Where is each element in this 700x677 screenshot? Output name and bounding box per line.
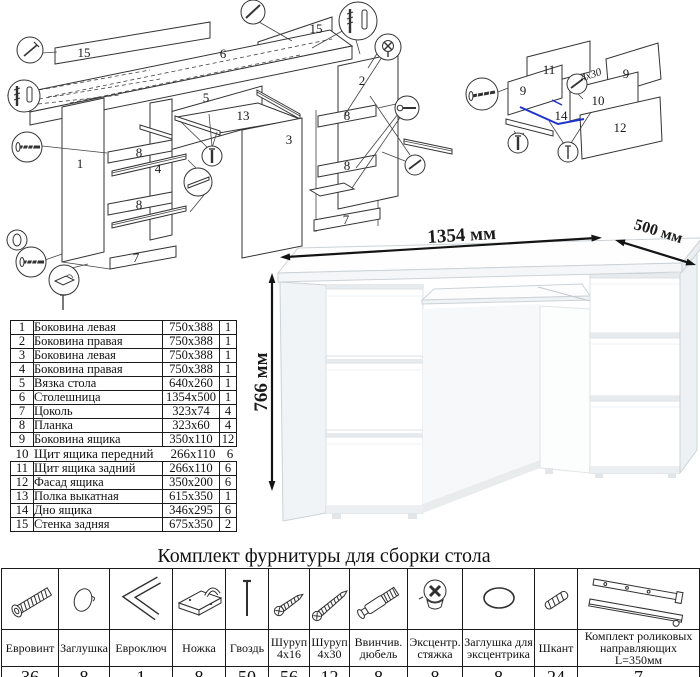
screw-4x16-icon (269, 571, 309, 627)
wood-dowel-icon (535, 571, 577, 627)
nail-icon (226, 571, 268, 627)
table-row: 11Щит ящика задний266x1106 (11, 462, 237, 476)
callout-dowel-and-shkant (339, 2, 377, 40)
part-label-4: 4 (155, 161, 162, 176)
hardware-label: Шуруп 4х30 (310, 630, 350, 667)
callout-confirmat (508, 133, 528, 153)
callout-cam-lock (375, 34, 401, 60)
table-row: 14Дно ящика346x2956 (11, 504, 237, 518)
hardware-qty: 36 (2, 667, 59, 677)
hardware-qty: 1 (110, 667, 173, 677)
table-row: 7Цоколь323x744 (11, 405, 237, 419)
hardware-table: Евровинт Заглушка Евроключ Ножка Гвоздь … (1, 568, 700, 677)
part-plinth (110, 246, 176, 269)
part-label-8: 8 (344, 108, 351, 123)
parts-table-2: 11Щит ящика задний266x1106 12Фасад ящика… (10, 461, 237, 532)
hardware-qty: 8 (463, 667, 535, 677)
hardware-label: Ввинчив. дюбель (350, 630, 408, 667)
hardware-qty: 7 (578, 667, 700, 677)
callout-screw (395, 96, 419, 120)
height-dimension-label: 766 мм (251, 352, 272, 411)
screw-in-dowel-icon (351, 571, 407, 627)
roller-slides-icon (580, 571, 698, 627)
callout-screw (405, 155, 425, 175)
table-row: 5Вязка стола640x2601 (11, 377, 237, 391)
table-row: 8Планка323x604 (11, 419, 237, 433)
part-label-1: 1 (77, 156, 84, 171)
callout-foot (49, 265, 79, 310)
table-row: 6Столешница1354x5001 (11, 391, 237, 405)
part-label-15: 15 (78, 45, 91, 60)
table-row: 4Боковина правая750x3881 (11, 363, 237, 377)
hardware-labels-row: Евровинт Заглушка Евроключ Ножка Гвоздь … (2, 630, 700, 667)
hardware-kit: Евровинт Заглушка Евроключ Ножка Гвоздь … (1, 568, 699, 677)
callout-screw (241, 0, 265, 24)
part-label-2: 2 (359, 73, 366, 88)
part-side-panel-1 (62, 98, 104, 262)
euro-screw-icon (3, 571, 57, 627)
part-label-13: 13 (237, 108, 250, 123)
part-size: 750x388 (163, 321, 220, 335)
part-no: 1 (11, 321, 34, 335)
desk-render: 1354 мм 500 мм 766 мм (250, 210, 700, 540)
hardware-label: Шуруп 4х16 (269, 630, 310, 667)
part-label-8: 8 (136, 197, 143, 212)
part-label-10: 10 (592, 93, 605, 108)
cam-lock-icon (408, 571, 462, 627)
part-label-8: 8 (344, 158, 351, 173)
table-row: 9Боковина ящика350x11012 (11, 433, 237, 447)
hardware-label: Гвоздь (226, 630, 269, 667)
hardware-label: Евроключ (110, 630, 173, 667)
furniture-cap-icon (59, 571, 109, 627)
furniture-foot-icon (173, 571, 225, 627)
part-label-9: 9 (520, 83, 527, 98)
hardware-qty: 8 (408, 667, 463, 677)
callout-dowel-and-shkant (8, 80, 40, 112)
width-dimension-label: 1354 мм (427, 223, 497, 248)
table-row: 12Фасад ящика350x2006 (11, 476, 237, 490)
hardware-label: Заглушка (59, 630, 110, 667)
part-label-6: 6 (220, 46, 227, 61)
hex-key-icon (111, 571, 171, 627)
drawer-rail (506, 119, 553, 136)
part-label-14: 14 (555, 108, 569, 123)
hardware-icons-row (2, 569, 700, 630)
part-name: Боковина левая (34, 321, 163, 335)
hardware-label: Шкант (535, 630, 578, 667)
assembly-instruction-page: 15 15 6 5 13 3 1 8 4 8 7 2 8 8 7 (0, 0, 700, 677)
part-label-11: 11 (543, 62, 556, 77)
part-label-5: 5 (203, 90, 210, 105)
table-row: 3Боковина левая750x3881 (11, 349, 237, 363)
hardware-label: Евровинт (2, 630, 59, 667)
part-label-12: 12 (614, 120, 627, 135)
hardware-kit-title: Комплект фурнитуры для сборки стола (0, 545, 648, 567)
part-label-9: 9 (623, 66, 630, 81)
desk-3d (278, 238, 700, 521)
callout-nail (558, 142, 578, 162)
callout-euro-screw (12, 132, 42, 162)
callout-confirmat (202, 146, 222, 166)
hardware-qty: 8 (173, 667, 226, 677)
parts-list: 1Боковина левая750x3881 2Боковина правая… (10, 320, 234, 532)
table-row: 15Стенка задняя675x3502 (11, 518, 237, 532)
callout-euro-screw (16, 247, 46, 277)
hardware-qty: 8 (59, 667, 110, 677)
table-row: 13Полка выкатная615x3501 (11, 490, 237, 504)
table-row: 1Боковина левая750x3881 (11, 321, 237, 335)
callout-euro-screw (466, 78, 498, 110)
part-label-8: 8 (136, 145, 143, 160)
part-qty: 1 (220, 321, 237, 335)
part-label-15: 15 (310, 21, 323, 36)
drawer-rail (404, 139, 452, 154)
hardware-qty: 8 (350, 667, 408, 677)
hardware-label: Ножка (173, 630, 226, 667)
exploded-drawer-assembly: 11 9 9 10 12 14 4х30 (466, 41, 662, 162)
part-label-7: 7 (133, 250, 140, 265)
hardware-label: Заглушка для эксцентрика (463, 630, 535, 667)
screw-4x30-icon (310, 571, 350, 627)
table-row: 2Боковина правая750x3881 (11, 335, 237, 349)
callout-rail (184, 168, 212, 196)
hardware-qty: 50 (226, 667, 269, 677)
hardware-qty: 24 (535, 667, 578, 677)
table-row-unbordered: 10 Щит ящика передний 266x110 6 (10, 447, 238, 461)
cam-cap-icon (464, 571, 534, 627)
part-label-3: 3 (286, 132, 293, 147)
hardware-qty: 12 (310, 667, 350, 677)
callout-nail (17, 37, 43, 63)
hardware-qty: 56 (269, 667, 310, 677)
hardware-qty-row: 36 8 1 8 50 56 12 8 8 8 24 7 (2, 667, 700, 677)
hardware-label: Эксцентр. стяжка (408, 630, 463, 667)
callout-cap (7, 230, 27, 250)
parts-table-1: 1Боковина левая750x3881 2Боковина правая… (10, 320, 237, 447)
hardware-label: Комплект роликовых направляющих L=350мм (578, 630, 700, 667)
